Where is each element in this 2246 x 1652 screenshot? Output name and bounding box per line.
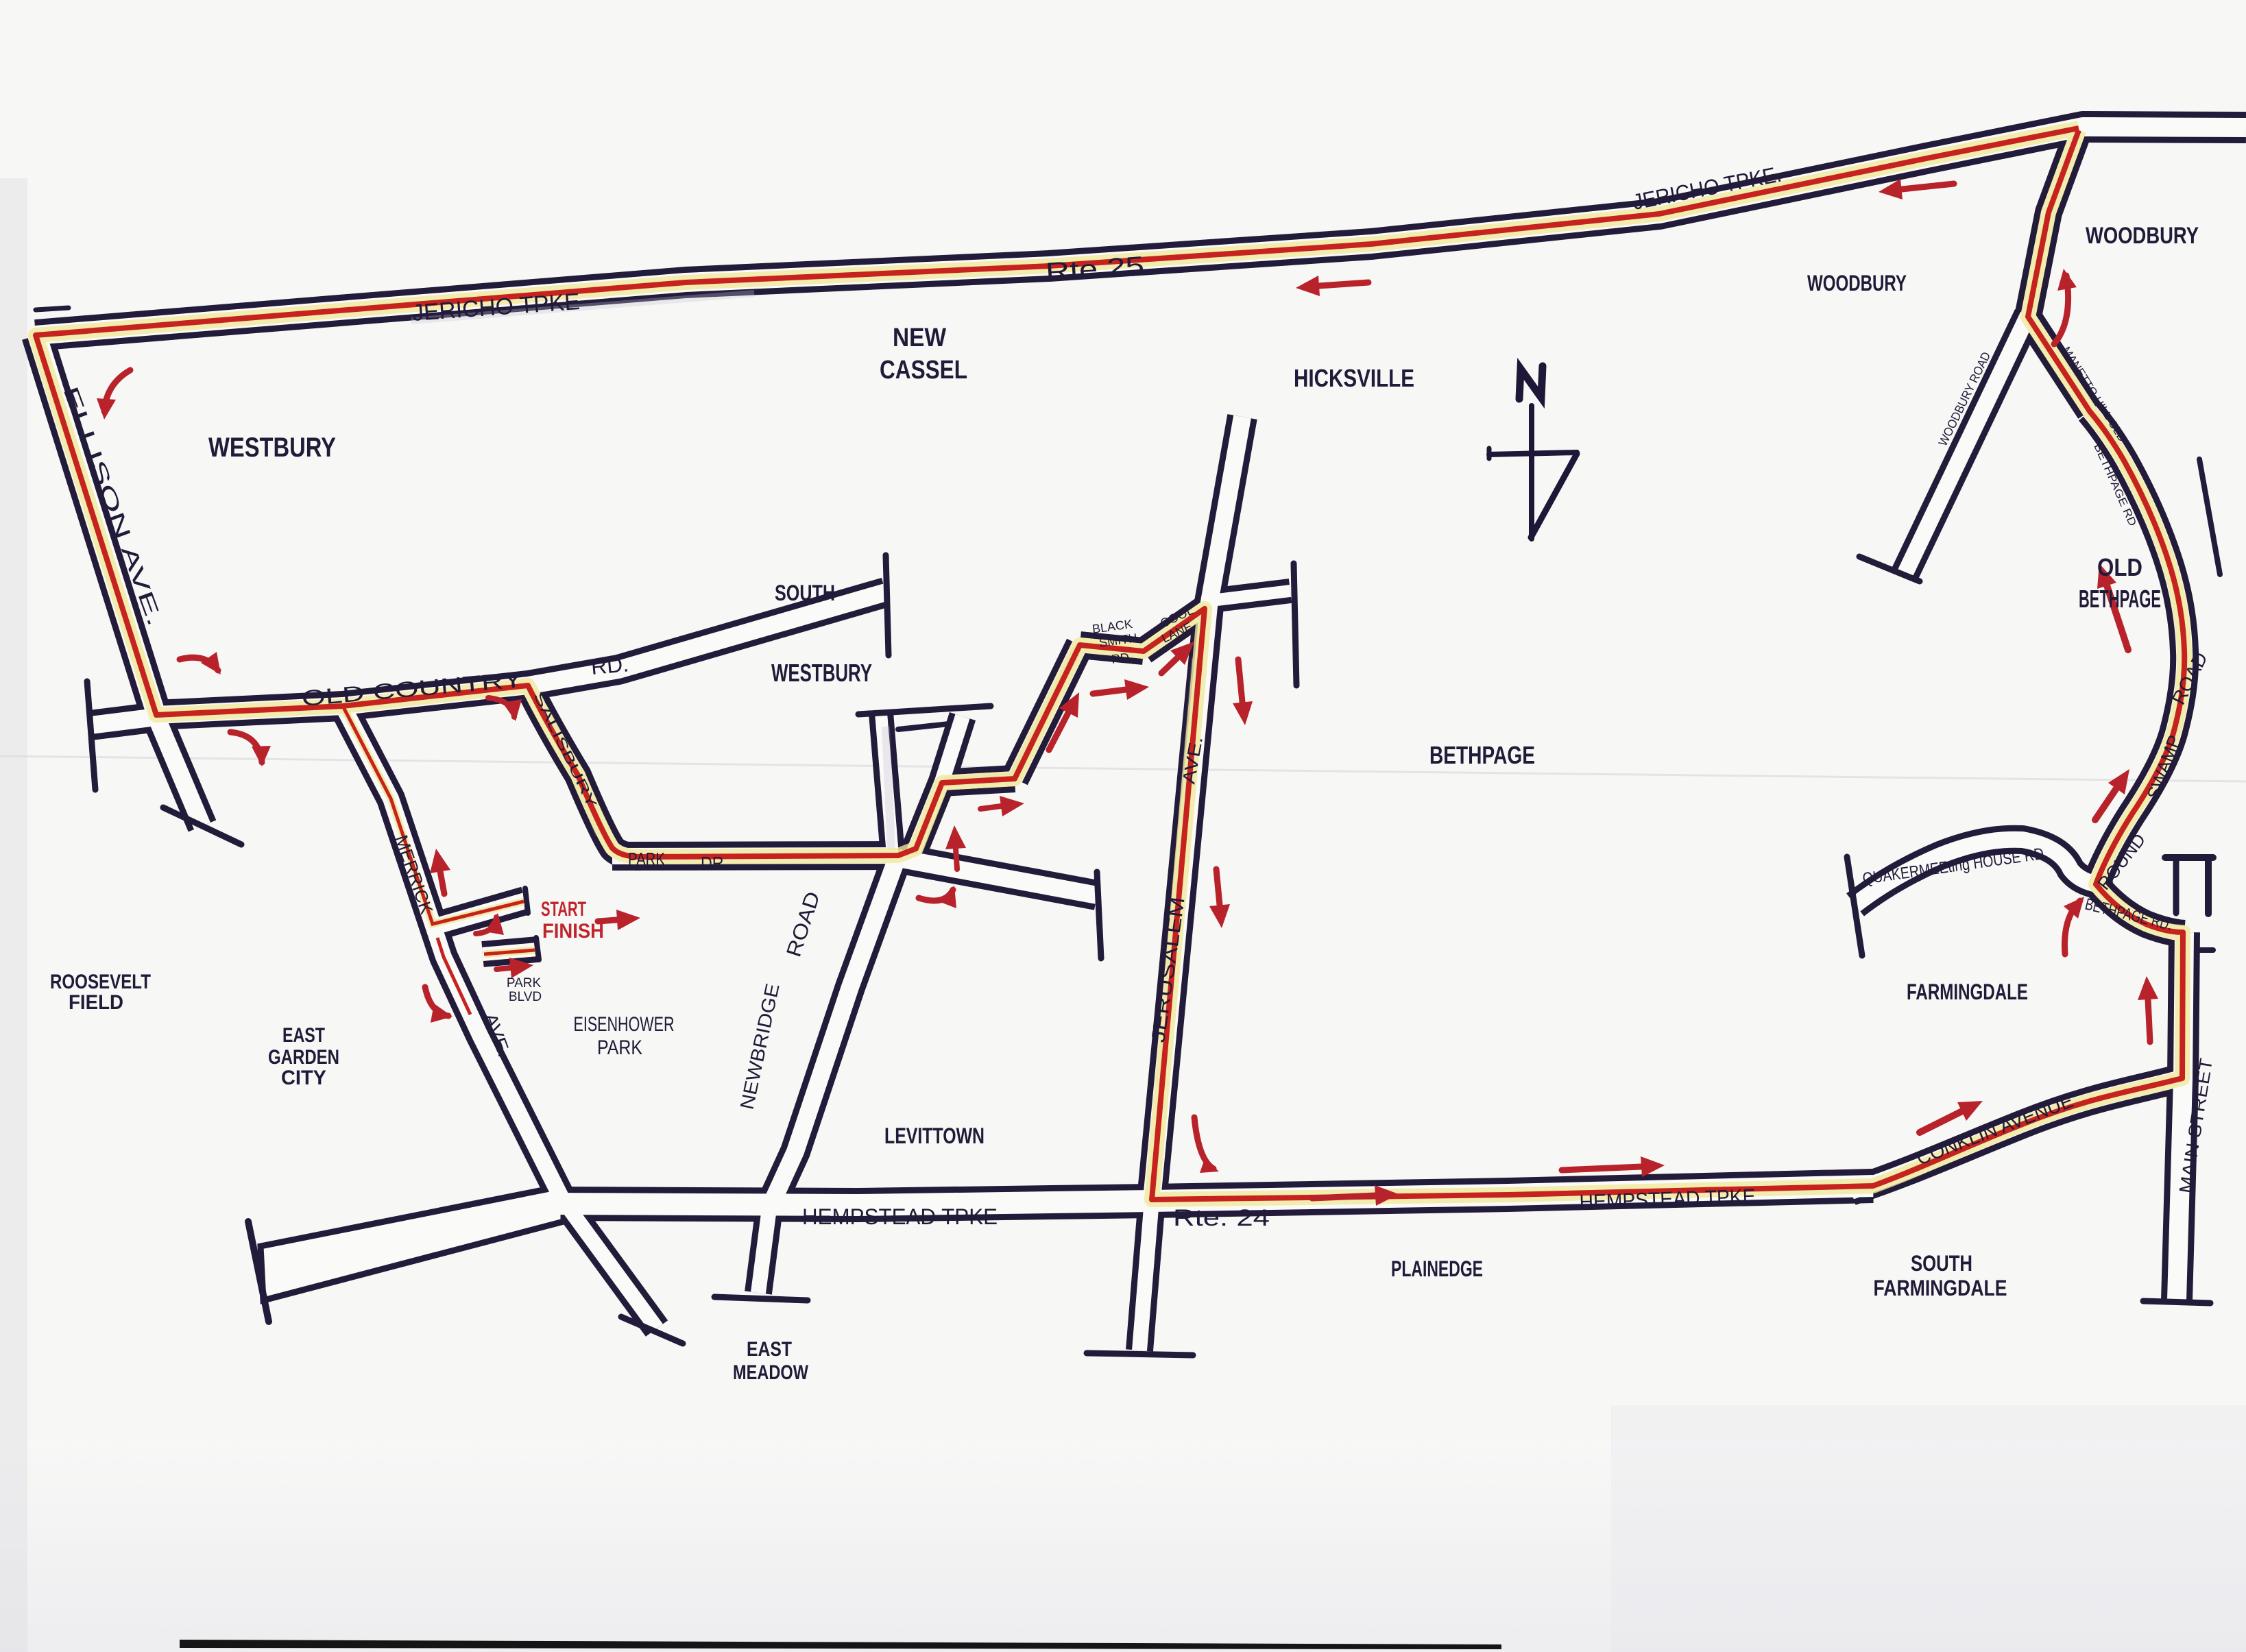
svg-text:FINISH: FINISH: [542, 920, 604, 943]
svg-text:HEMPSTEAD TPKE: HEMPSTEAD TPKE: [802, 1204, 998, 1229]
svg-text:SOUTH: SOUTH: [1911, 1251, 1972, 1276]
svg-text:NEW: NEW: [893, 324, 946, 352]
svg-text:START: START: [541, 898, 586, 921]
svg-text:EAST: EAST: [747, 1338, 792, 1361]
svg-text:DR.: DR.: [701, 853, 728, 873]
svg-text:CITY: CITY: [281, 1067, 326, 1089]
svg-text:RD.: RD.: [590, 651, 629, 679]
svg-text:EAST: EAST: [282, 1024, 325, 1047]
svg-text:WOODBURY: WOODBURY: [2086, 223, 2199, 249]
svg-text:WOODBURY: WOODBURY: [1807, 271, 1907, 295]
svg-text:PARK: PARK: [628, 849, 666, 869]
svg-text:BETHPAGE: BETHPAGE: [1429, 741, 1535, 769]
svg-text:EISENHOWER: EISENHOWER: [574, 1013, 675, 1036]
svg-text:SOUTH: SOUTH: [775, 581, 835, 605]
svg-text:MEADOW: MEADOW: [733, 1361, 809, 1384]
svg-text:RD: RD: [1111, 651, 1131, 666]
svg-text:FARMINGDALE: FARMINGDALE: [1907, 980, 2028, 1004]
svg-text:ROOSEVELT: ROOSEVELT: [50, 971, 151, 993]
svg-text:OLD: OLD: [2097, 553, 2142, 581]
svg-text:BETHPAGE: BETHPAGE: [2079, 585, 2161, 613]
svg-text:CASSEL: CASSEL: [880, 356, 967, 385]
svg-text:WESTBURY: WESTBURY: [771, 659, 872, 687]
svg-text:Rte. 24: Rte. 24: [1173, 1205, 1270, 1231]
svg-text:PARK: PARK: [507, 976, 542, 991]
svg-text:FARMINGDALE: FARMINGDALE: [1874, 1276, 2007, 1300]
svg-text:PLAINEDGE: PLAINEDGE: [1391, 1256, 1483, 1281]
svg-text:FIELD: FIELD: [69, 991, 123, 1014]
svg-text:LEVITTOWN: LEVITTOWN: [884, 1123, 985, 1148]
svg-text:WESTBURY: WESTBURY: [208, 433, 336, 463]
svg-text:GARDEN: GARDEN: [268, 1046, 339, 1069]
svg-text:HICKSVILLE: HICKSVILLE: [1294, 364, 1414, 392]
svg-text:PARK: PARK: [597, 1036, 642, 1059]
svg-text:BLVD: BLVD: [509, 990, 542, 1004]
